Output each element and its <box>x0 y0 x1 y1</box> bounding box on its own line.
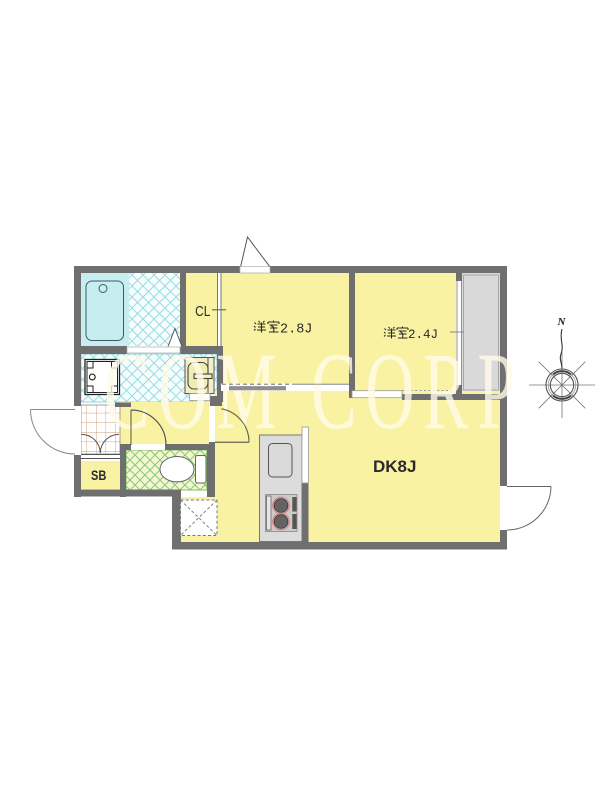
svg-text:DK8J: DK8J <box>373 457 416 476</box>
svg-text:2.4J: 2.4J <box>408 328 438 342</box>
svg-text:N: N <box>557 316 567 328</box>
svg-text:CL: CL <box>195 303 210 319</box>
svg-text:COM CORP: COM CORP <box>104 329 524 452</box>
svg-text:SB: SB <box>91 468 106 483</box>
svg-text:2.8J: 2.8J <box>280 323 312 338</box>
